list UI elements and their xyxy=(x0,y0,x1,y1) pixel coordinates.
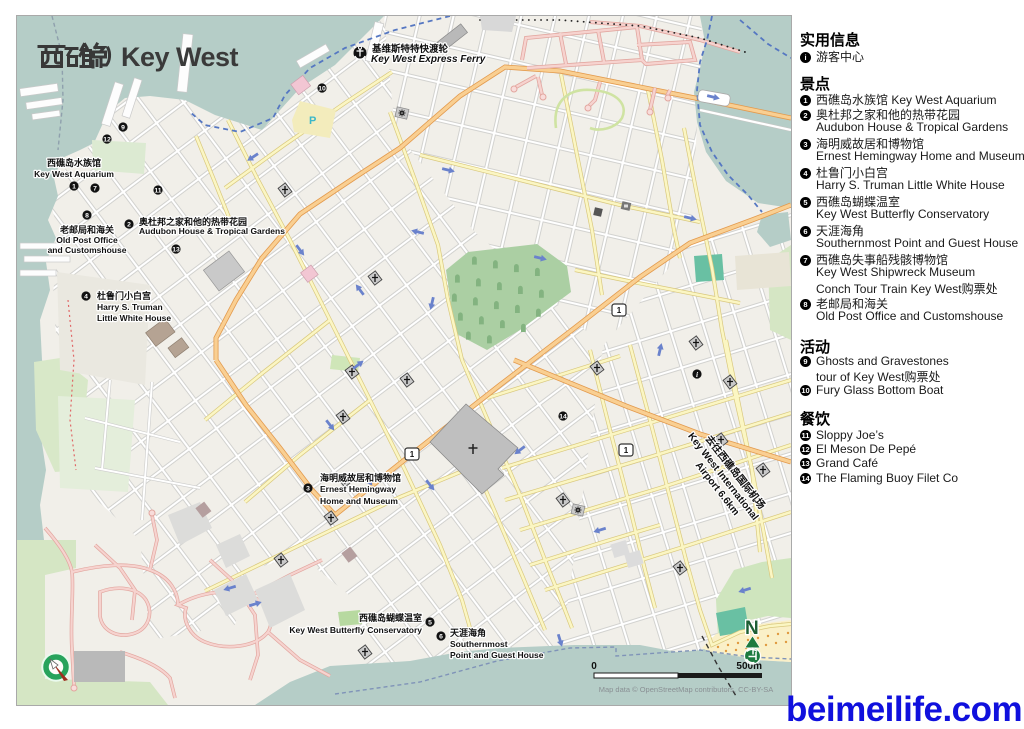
svg-text:Map data © OpenStreetMap contr: Map data © OpenStreetMap contributors, C… xyxy=(599,685,774,694)
svg-text:Audubon House & Tropical Garde: Audubon House & Tropical Gardens xyxy=(139,226,285,236)
svg-text:Key West Express Ferry: Key West Express Ferry xyxy=(371,54,486,65)
svg-text:Southernmost: Southernmost xyxy=(450,639,508,649)
svg-text:杜鲁门小白宫: 杜鲁门小白宫 xyxy=(97,290,151,301)
svg-text:天涯海角: 天涯海角 xyxy=(450,627,486,638)
svg-text:6: 6 xyxy=(439,633,443,640)
svg-text:1: 1 xyxy=(410,450,415,459)
svg-text:7: 7 xyxy=(93,185,97,192)
svg-text:9: 9 xyxy=(121,124,125,131)
svg-text:5: 5 xyxy=(428,619,432,626)
svg-text:Key West: Key West xyxy=(121,42,239,72)
svg-text:12: 12 xyxy=(103,136,111,143)
svg-text:海明威故居和博物馆: 海明威故居和博物馆 xyxy=(320,472,401,483)
svg-text:西礁岛水族馆: 西礁岛水族馆 xyxy=(47,157,101,168)
svg-text:4: 4 xyxy=(84,293,88,300)
svg-text:Home and Museum: Home and Museum xyxy=(320,496,398,506)
svg-text:Key West Aquarium: Key West Aquarium xyxy=(34,169,114,179)
svg-text:西礁岛蝴蝶温室: 西礁岛蝴蝶温室 xyxy=(359,612,422,623)
svg-text:N: N xyxy=(745,618,759,639)
svg-text:1: 1 xyxy=(72,183,76,190)
svg-text:3: 3 xyxy=(306,485,310,492)
svg-text:Key West Butterfly Conservator: Key West Butterfly Conservatory xyxy=(289,625,422,635)
svg-text:Old Post Office: Old Post Office xyxy=(56,235,118,245)
svg-text:10: 10 xyxy=(318,85,326,92)
svg-text:Little White House: Little White House xyxy=(97,313,171,323)
svg-text:14: 14 xyxy=(559,413,567,420)
svg-text:老邮局和海关: 老邮局和海关 xyxy=(59,224,114,235)
svg-text:0: 0 xyxy=(591,661,597,672)
svg-text:Ernest Hemingway: Ernest Hemingway xyxy=(320,484,396,494)
svg-text:13: 13 xyxy=(172,246,180,253)
svg-text:2: 2 xyxy=(127,221,131,228)
svg-text:8: 8 xyxy=(85,212,89,219)
svg-text:Harry S. Truman: Harry S. Truman xyxy=(97,302,163,312)
svg-text:11: 11 xyxy=(154,187,161,194)
svg-text:P: P xyxy=(309,115,316,127)
svg-text:and Customshouse: and Customshouse xyxy=(48,245,127,255)
svg-text:Point and Guest House: Point and Guest House xyxy=(450,650,544,660)
